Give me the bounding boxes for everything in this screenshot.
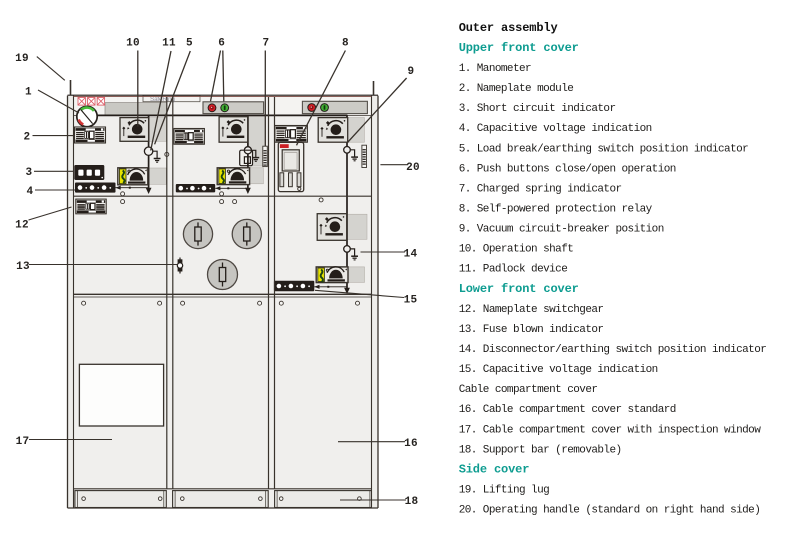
svg-text:Outer assembly: Outer assembly <box>459 21 558 35</box>
svg-text:10. Operation shaft: 10. Operation shaft <box>459 244 574 256</box>
svg-text:15. Capacitive voltage indicat: 15. Capacitive voltage indication <box>459 364 658 376</box>
svg-text:9. Vacuum circuit-breaker posi: 9. Vacuum circuit-breaker position <box>459 224 664 236</box>
svg-text:17. Cable compartment cover wi: 17. Cable compartment cover with inspect… <box>459 424 762 436</box>
svg-text:4: 4 <box>27 186 34 198</box>
svg-text:3: 3 <box>26 167 33 179</box>
svg-text:6: 6 <box>218 37 225 49</box>
svg-text:9: 9 <box>408 66 415 78</box>
svg-text:11: 11 <box>162 37 176 49</box>
svg-text:Lower front cover: Lower front cover <box>459 282 579 296</box>
svg-text:Upper front cover: Upper front cover <box>459 41 579 55</box>
svg-text:16. Cable compartment cover st: 16. Cable compartment cover standard <box>459 404 676 416</box>
svg-text:11. Padlock device: 11. Padlock device <box>459 264 568 276</box>
svg-text:18. Support bar (removable): 18. Support bar (removable) <box>459 444 622 456</box>
svg-text:18: 18 <box>405 496 419 508</box>
svg-text:10: 10 <box>126 37 140 49</box>
svg-text:4. Capacitive voltage indicati: 4. Capacitive voltage indication <box>459 123 652 135</box>
svg-text:8. Self-powered protection rel: 8. Self-powered protection relay <box>459 204 653 216</box>
svg-text:2: 2 <box>24 131 31 143</box>
svg-text:20: 20 <box>406 162 420 174</box>
svg-text:7: 7 <box>263 37 270 49</box>
svg-text:13: 13 <box>16 261 30 273</box>
svg-text:15: 15 <box>404 294 418 306</box>
svg-text:Side cover: Side cover <box>459 462 530 476</box>
svg-text:5. Load break/earthing switch: 5. Load break/earthing switch position i… <box>459 143 749 155</box>
svg-text:19. Lifting lug: 19. Lifting lug <box>459 485 549 497</box>
svg-text:1: 1 <box>25 87 32 99</box>
svg-text:8: 8 <box>342 37 349 49</box>
svg-text:6. Push buttons close/open ope: 6. Push buttons close/open operation <box>459 163 676 175</box>
svg-text:7. Charged spring indicator: 7. Charged spring indicator <box>459 184 622 196</box>
svg-text:2. Nameplate module: 2. Nameplate module <box>459 83 574 95</box>
svg-text:20. Operating handle (standard: 20. Operating handle (standard on right … <box>459 505 761 517</box>
svg-text:12. Nameplate switchgear: 12. Nameplate switchgear <box>459 304 604 316</box>
svg-text:19: 19 <box>15 53 29 65</box>
svg-text:16: 16 <box>404 438 418 450</box>
svg-text:12: 12 <box>15 220 29 232</box>
svg-text:14: 14 <box>404 248 418 260</box>
svg-text:17: 17 <box>16 436 30 448</box>
svg-text:Cable compartment cover: Cable compartment cover <box>459 384 598 396</box>
svg-text:1. Manometer: 1. Manometer <box>459 63 531 75</box>
svg-text:5: 5 <box>186 37 193 49</box>
svg-text:13. Fuse blown indicator: 13. Fuse blown indicator <box>459 324 604 336</box>
svg-text:14. Disconnector/earthing swit: 14. Disconnector/earthing switch positio… <box>459 344 767 356</box>
svg-text:3. Short circuit indicator: 3. Short circuit indicator <box>459 103 616 115</box>
